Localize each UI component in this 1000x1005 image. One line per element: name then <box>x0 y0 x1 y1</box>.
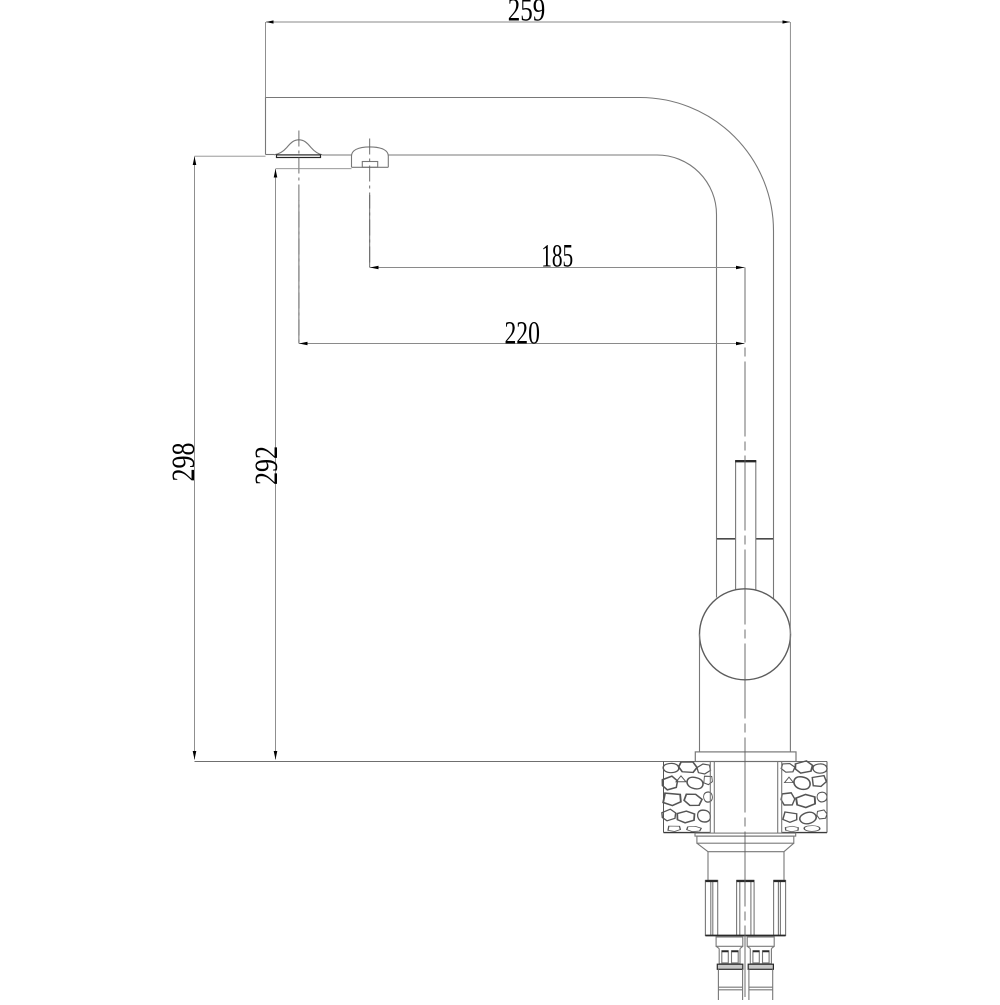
svg-text:185: 185 <box>541 238 573 274</box>
svg-text:259: 259 <box>508 0 546 28</box>
svg-text:298: 298 <box>166 443 202 482</box>
svg-text:220: 220 <box>504 315 540 351</box>
svg-text:292: 292 <box>249 446 285 485</box>
